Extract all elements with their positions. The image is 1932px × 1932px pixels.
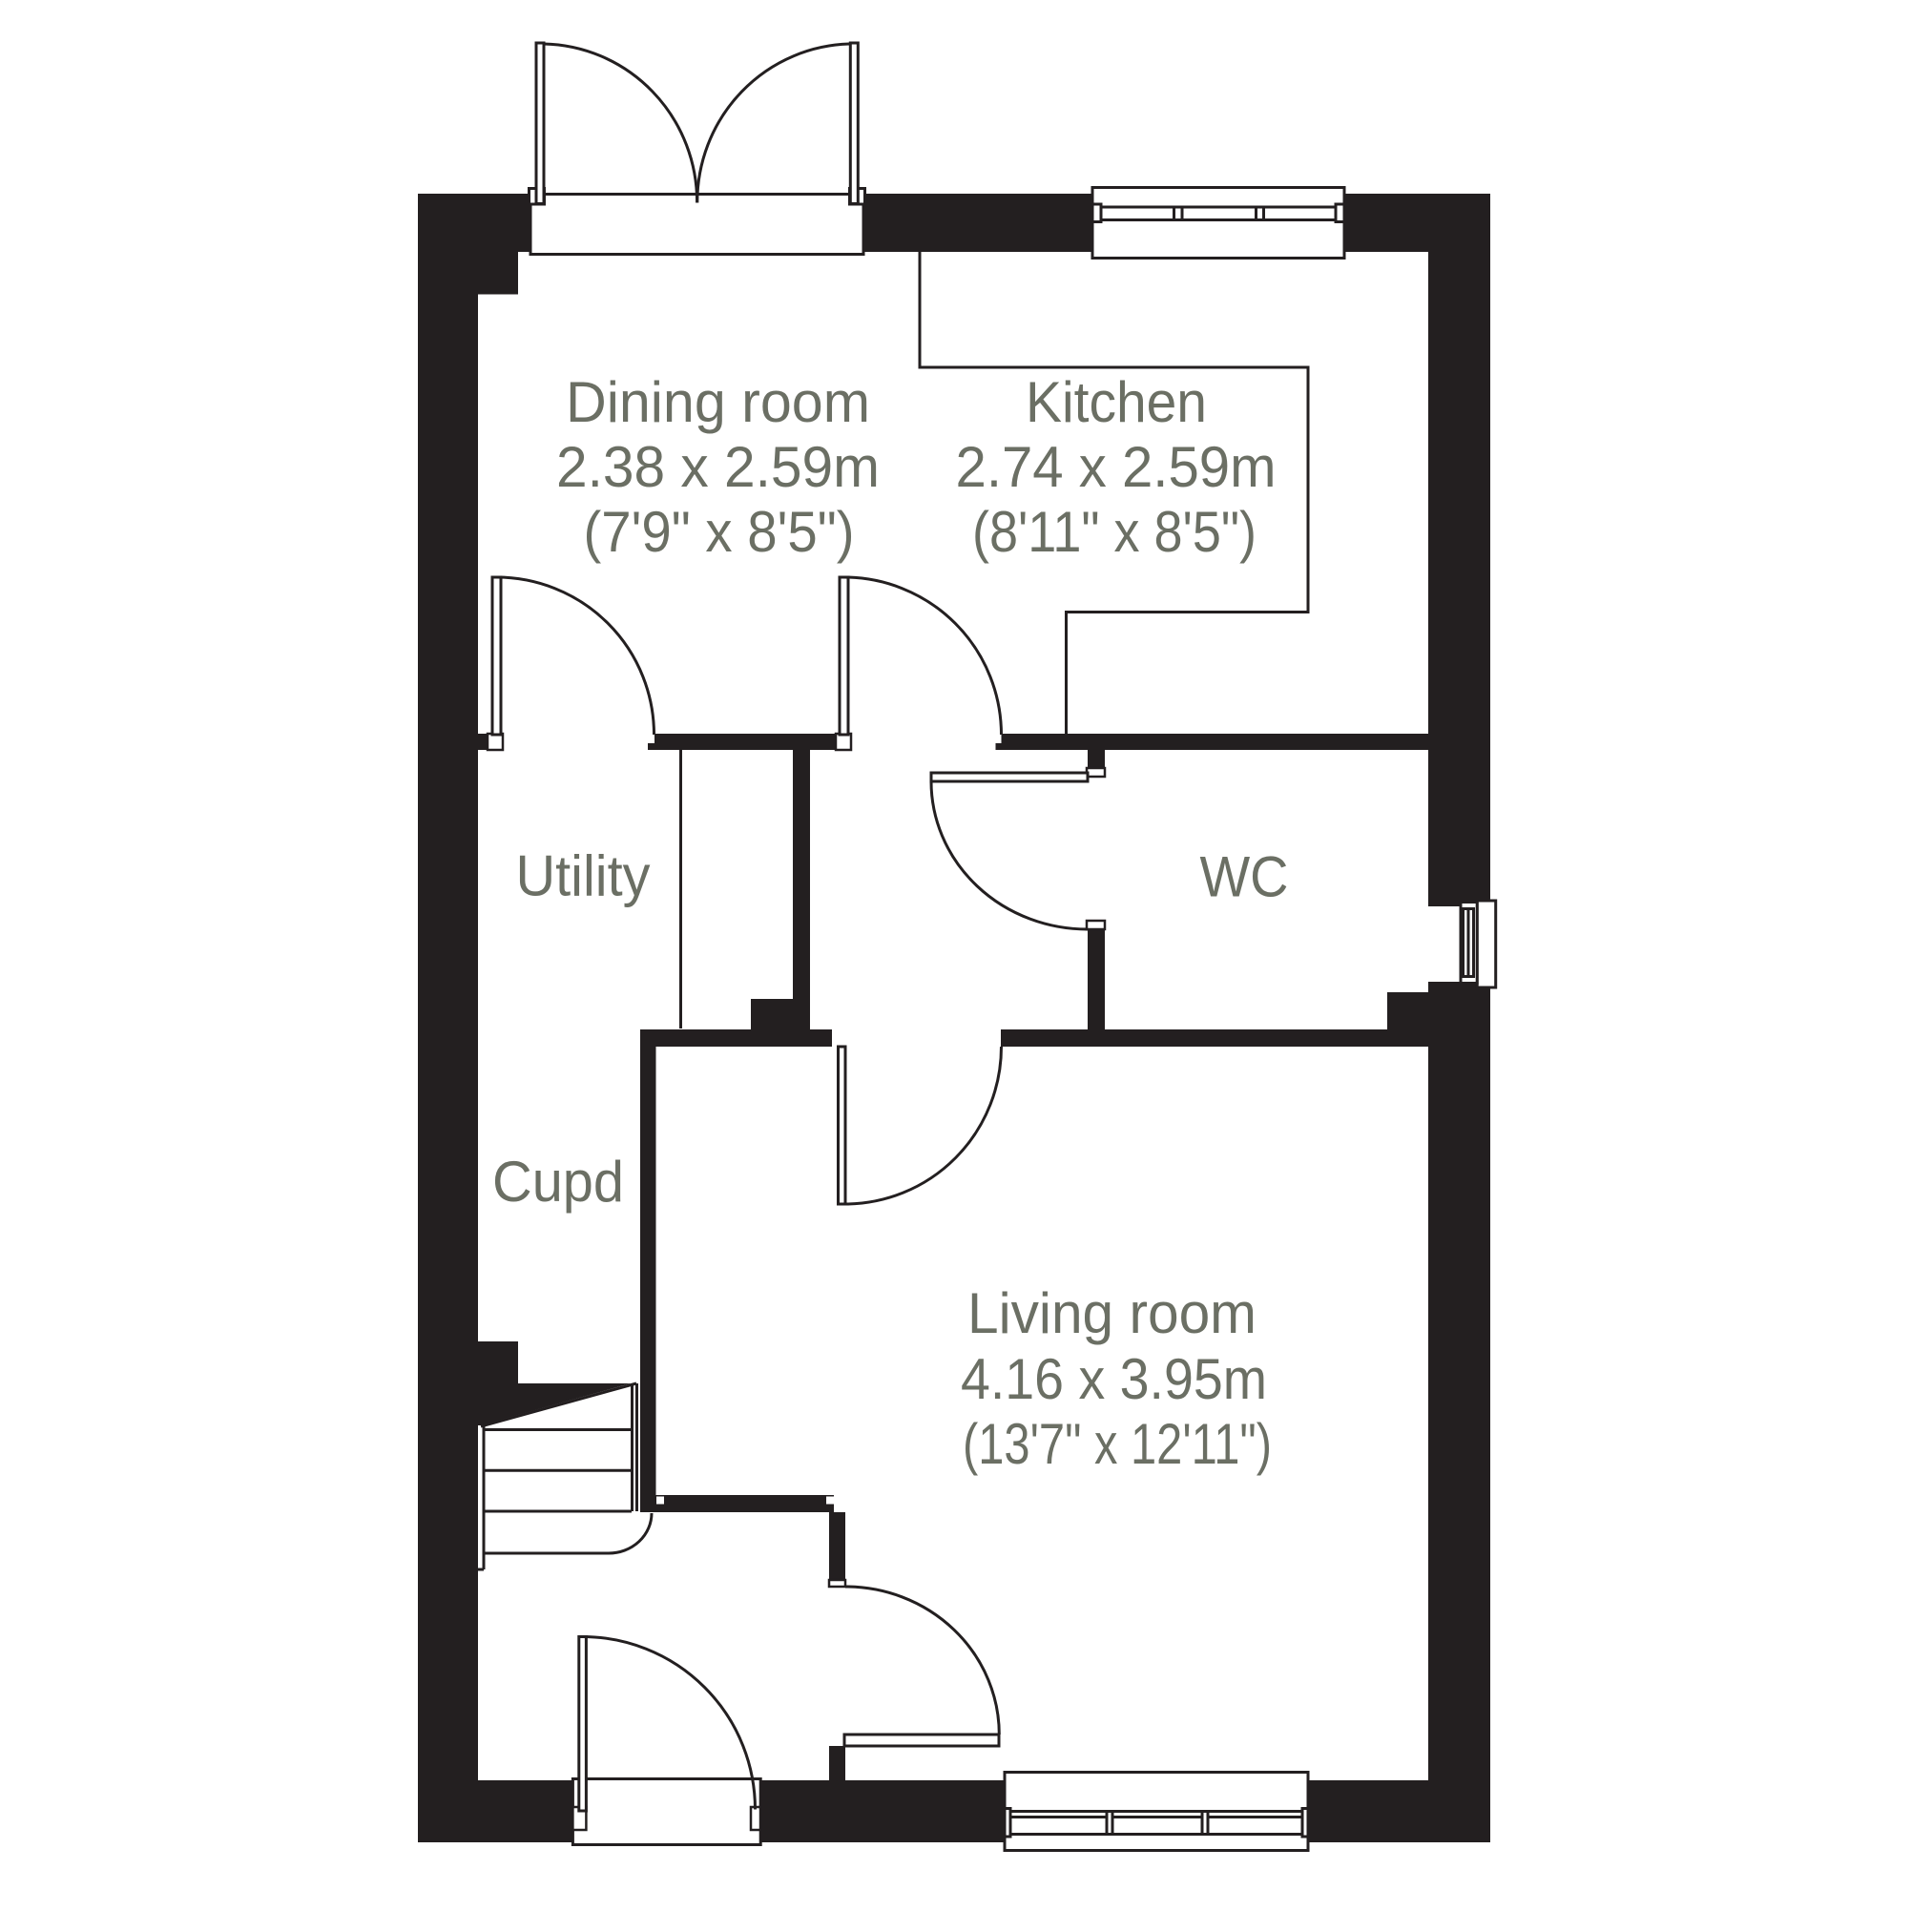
svg-text:Utility: Utility — [516, 844, 651, 908]
svg-text:(7'9" x 8'5"): (7'9" x 8'5") — [584, 500, 855, 564]
svg-text:(13'7" x 12'11"): (13'7" x 12'11") — [963, 1412, 1272, 1476]
svg-text:4.16 x 3.95m: 4.16 x 3.95m — [961, 1347, 1267, 1411]
svg-text:2.74 x 2.59m: 2.74 x 2.59m — [956, 435, 1277, 499]
svg-text:Dining room: Dining room — [566, 370, 870, 434]
svg-text:(8'11" x 8'5"): (8'11" x 8'5") — [972, 500, 1257, 564]
svg-text:WC: WC — [1200, 845, 1289, 909]
svg-text:Cupd: Cupd — [492, 1150, 624, 1214]
svg-text:2.38 x 2.59m: 2.38 x 2.59m — [556, 435, 880, 499]
svg-text:Kitchen: Kitchen — [1026, 370, 1207, 434]
svg-text:Living room: Living room — [967, 1281, 1257, 1345]
